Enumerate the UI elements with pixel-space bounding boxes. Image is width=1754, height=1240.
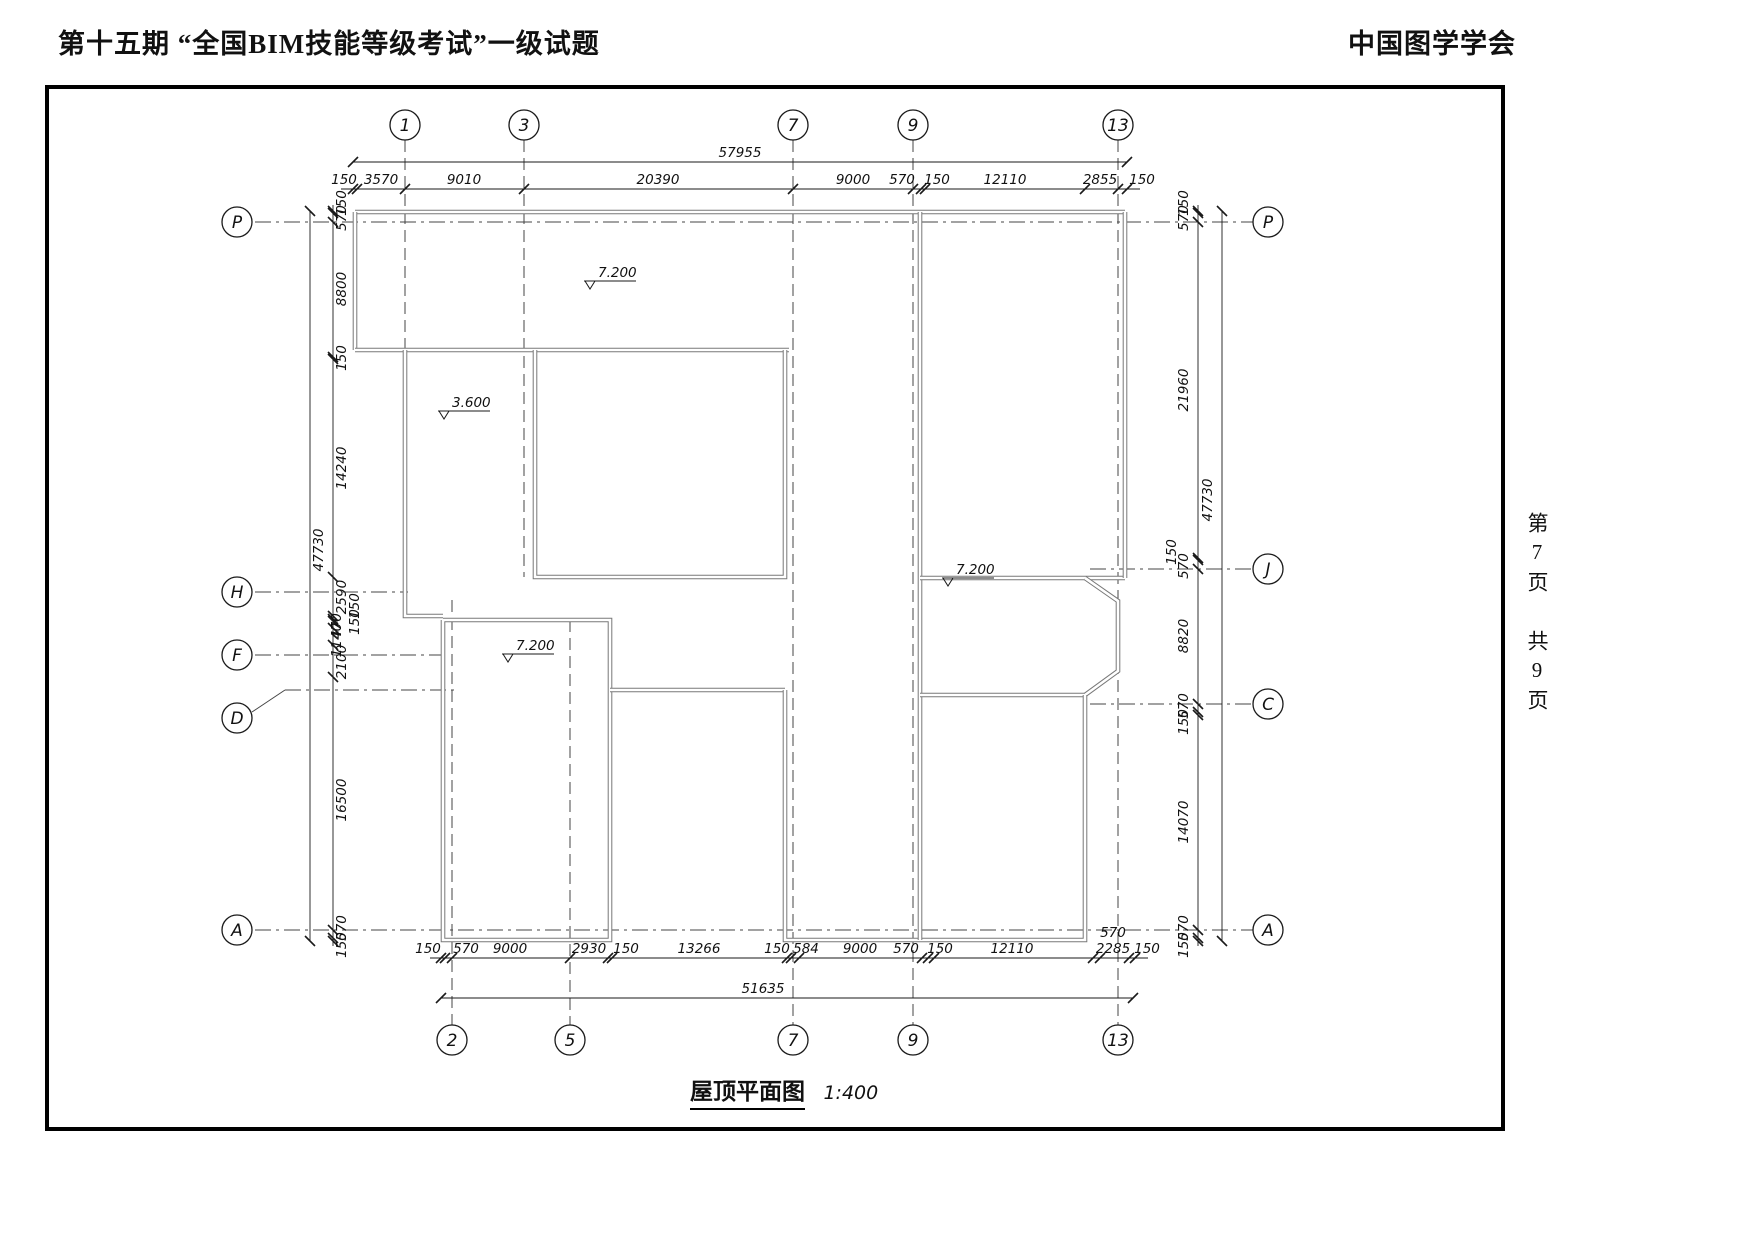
dim-label: 8820 (1176, 619, 1192, 653)
caption-title: 屋顶平面图 (690, 1072, 805, 1110)
grid-bubble-label: 2 (447, 1031, 458, 1051)
wall (443, 620, 610, 940)
plan-svg: 5795515035709010203909000570150121102855… (0, 0, 1754, 1240)
dim-label: 570 (893, 941, 919, 957)
sheet-page: 第十五期 “全国BIM技能等级考试”一级试题 中国图学学会 第7页 共9页 57… (0, 0, 1754, 1240)
dim-label: 150 (1134, 941, 1160, 957)
dim-label: 16500 (334, 779, 350, 822)
dim-label: 9000 (493, 941, 527, 957)
wall (785, 690, 923, 940)
grid-bubble-label: 7 (788, 1031, 799, 1051)
wall-core (923, 695, 1085, 940)
dim-label: 2285 (1096, 941, 1130, 957)
dim-label: 150 (334, 932, 350, 958)
wall-core (785, 690, 923, 940)
dim-label: 21960 (1176, 369, 1192, 412)
elevation-label: 7.200 (956, 562, 995, 578)
dim-label: 570 (453, 941, 479, 957)
grid-bubble-label: P (1263, 213, 1274, 233)
dim-label: 2930 (572, 941, 606, 957)
grid-bubble-label: 7 (788, 116, 799, 136)
dim-label: 14070 (1176, 801, 1192, 844)
wall (1085, 578, 1118, 695)
grid-leader (252, 690, 285, 712)
wall (923, 695, 1085, 940)
grid-bubble-label: C (1262, 695, 1274, 715)
dim-label: 3570 (364, 172, 398, 188)
dim-label: 150 (924, 172, 950, 188)
wall-core (535, 350, 785, 577)
wall-core (405, 350, 443, 616)
wall (535, 350, 785, 577)
dim-label: 150 (347, 609, 363, 635)
dim-label: 2855 (1083, 172, 1117, 188)
dim-label: 20390 (637, 172, 680, 188)
dim-label: 57955 (719, 145, 762, 161)
dim-label: 570 (334, 205, 350, 231)
dim-label: 150 (764, 941, 790, 957)
elevation-triangle-icon (503, 654, 513, 662)
grid-bubble-label: 13 (1107, 1031, 1129, 1051)
grid-bubble-label: 3 (519, 116, 530, 136)
dim-label: 150 (415, 941, 441, 957)
dim-label: 8800 (334, 272, 350, 306)
dim-label: 150 (613, 941, 639, 957)
dim-label: 51635 (742, 981, 785, 997)
grid-bubble-label: 1 (400, 116, 411, 136)
dim-label: 13266 (678, 941, 721, 957)
grid-bubble-label: 13 (1107, 116, 1129, 136)
dim-label: 2100 (334, 645, 350, 679)
dim-label: 47730 (1200, 479, 1216, 522)
elevation-triangle-icon (585, 281, 595, 289)
wall (405, 350, 443, 616)
drawing-caption: 屋顶平面图 1:400 (690, 1072, 878, 1110)
elevation-label: 3.600 (452, 395, 491, 411)
grid-bubble-label: P (232, 213, 243, 233)
elevation-label: 7.200 (516, 638, 555, 654)
dim-label: 570 (1100, 925, 1126, 941)
wall-core (443, 620, 610, 940)
dim-label: 570 (1176, 553, 1192, 579)
dim-label: 570 (1176, 205, 1192, 231)
dim-label: 9010 (447, 172, 481, 188)
grid-bubble-label: H (231, 583, 244, 603)
elevation-triangle-icon (439, 411, 449, 419)
dim-label: 9000 (843, 941, 877, 957)
grid-bubble-label: 5 (565, 1031, 576, 1051)
dim-label: 584 (793, 941, 819, 957)
grid-bubble-label: 9 (908, 1031, 919, 1051)
dim-label: 47730 (311, 529, 327, 572)
dim-label: 12110 (984, 172, 1027, 188)
dim-label: 150 (1176, 709, 1192, 735)
dim-label: 150 (1176, 932, 1192, 958)
dim-label: 150 (331, 172, 357, 188)
dim-label: 570 (889, 172, 915, 188)
caption-scale: 1:400 (823, 1082, 878, 1104)
dim-label: 150 (334, 345, 350, 371)
dim-label: 150 (1129, 172, 1155, 188)
dim-label: 150 (927, 941, 953, 957)
grid-bubble-label: F (232, 646, 242, 666)
dim-label: 9000 (836, 172, 870, 188)
elevation-label: 7.200 (598, 265, 637, 281)
dim-label: 14240 (334, 447, 350, 490)
grid-bubble-label: 9 (908, 116, 919, 136)
grid-bubble-label: D (230, 709, 243, 729)
grid-bubble-label: A (230, 921, 243, 941)
dim-label: 12110 (991, 941, 1034, 957)
grid-bubble-label: A (1261, 921, 1274, 941)
